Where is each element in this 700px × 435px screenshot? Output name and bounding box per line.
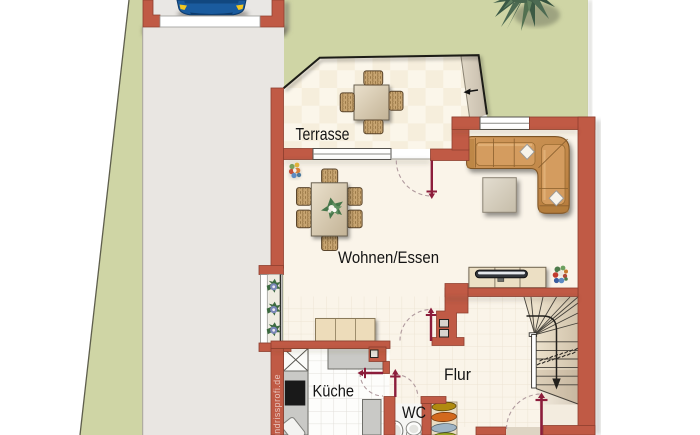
svg-text:WC: WC [402, 404, 426, 422]
svg-text:grundrissprofi.de: grundrissprofi.de [272, 374, 282, 435]
svg-text:Wohnen/Essen: Wohnen/Essen [338, 248, 439, 267]
svg-text:Flur: Flur [444, 365, 471, 384]
svg-text:Küche: Küche [313, 383, 355, 401]
svg-text:Terrasse: Terrasse [296, 124, 350, 144]
